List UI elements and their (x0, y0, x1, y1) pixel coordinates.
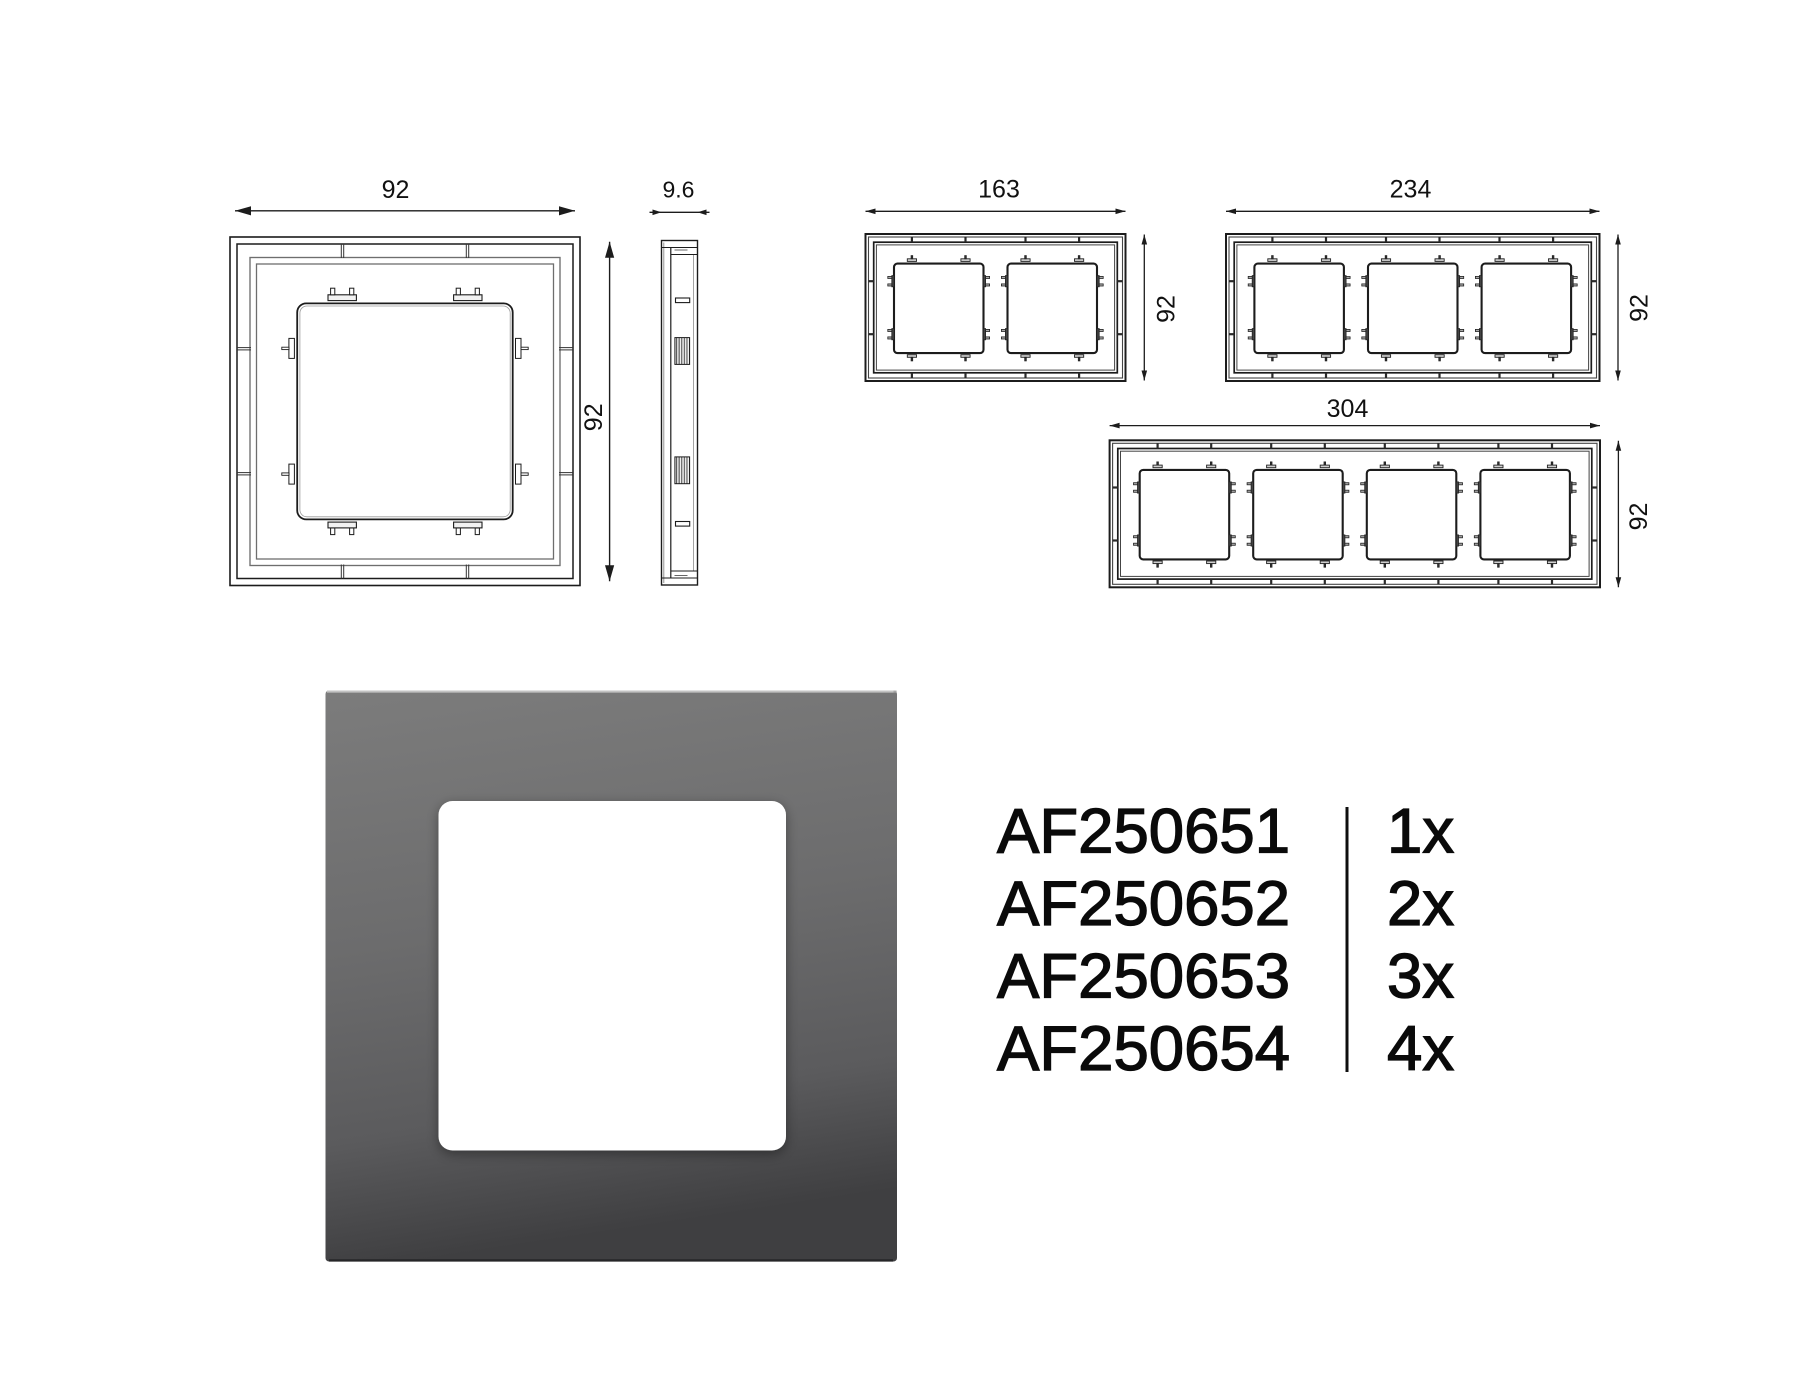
svg-text:1x: 1x (1387, 797, 1454, 867)
svg-text:92: 92 (1626, 294, 1654, 322)
svg-text:234: 234 (1390, 176, 1432, 204)
svg-text:AF250654: AF250654 (997, 1014, 1290, 1084)
svg-text:AF250653: AF250653 (997, 942, 1290, 1012)
svg-text:2x: 2x (1387, 869, 1454, 939)
svg-text:AF250651: AF250651 (997, 797, 1290, 867)
svg-text:4x: 4x (1387, 1014, 1454, 1084)
svg-text:163: 163 (978, 176, 1020, 204)
svg-text:9.6: 9.6 (663, 177, 695, 203)
svg-text:92: 92 (1153, 295, 1181, 323)
svg-text:92: 92 (580, 403, 608, 431)
svg-text:92: 92 (1625, 503, 1653, 531)
svg-text:304: 304 (1327, 395, 1369, 423)
svg-text:AF250652: AF250652 (997, 869, 1290, 939)
svg-text:92: 92 (382, 176, 410, 204)
svg-text:3x: 3x (1387, 942, 1454, 1012)
